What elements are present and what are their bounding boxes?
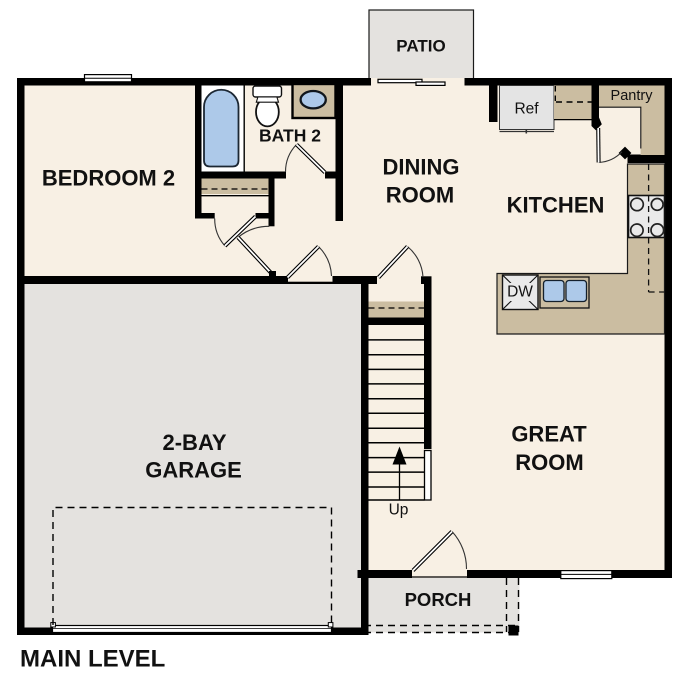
- svg-text:GARAGE: GARAGE: [145, 458, 242, 483]
- svg-text:PORCH: PORCH: [405, 589, 472, 610]
- svg-text:DINING: DINING: [383, 155, 460, 180]
- svg-text:BATH 2: BATH 2: [259, 126, 321, 146]
- svg-text:Pantry: Pantry: [611, 88, 654, 104]
- svg-text:ROOM: ROOM: [386, 183, 454, 208]
- svg-text:DW: DW: [507, 284, 533, 301]
- svg-text:Ref: Ref: [514, 101, 539, 118]
- svg-text:KITCHEN: KITCHEN: [507, 193, 605, 218]
- svg-text:ROOM: ROOM: [515, 450, 583, 475]
- svg-text:BEDROOM 2: BEDROOM 2: [42, 166, 175, 191]
- svg-text:Up: Up: [389, 502, 409, 519]
- svg-text:GREAT: GREAT: [511, 422, 587, 447]
- svg-text:MAIN LEVEL: MAIN LEVEL: [20, 646, 165, 673]
- svg-text:PATIO: PATIO: [396, 37, 445, 56]
- svg-text:2-BAY: 2-BAY: [163, 430, 227, 455]
